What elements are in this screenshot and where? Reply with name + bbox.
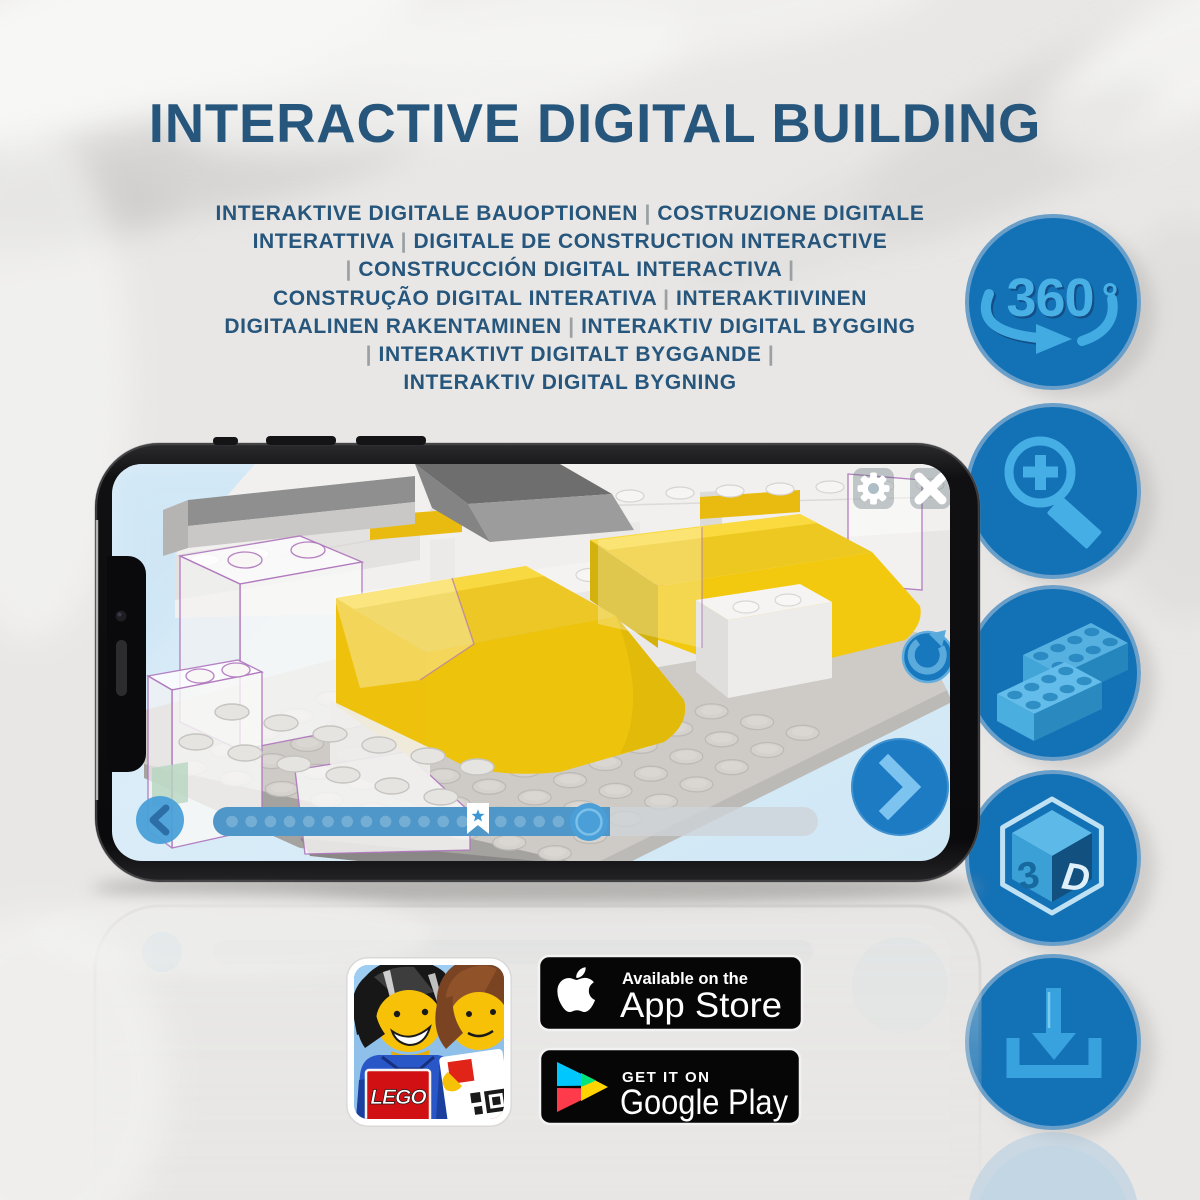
svg-text:Google Play: Google Play: [620, 1083, 788, 1122]
svg-text:DIGITAALINEN RAKENTAMINEN | IN: DIGITAALINEN RAKENTAMINEN | INTERAKTIV D…: [224, 315, 915, 338]
svg-text:LEGO: LEGO: [370, 1086, 426, 1109]
svg-text:CONSTRUÇÃO DIGITAL INTERATIVA: CONSTRUÇÃO DIGITAL INTERATIVA | INTERAKT…: [273, 287, 867, 310]
svg-text:INTERACTIVE DIGITAL BUILDING: INTERACTIVE DIGITAL BUILDING: [149, 93, 1041, 154]
svg-text:| INTERAKTIVT DIGITALT BYGGAND: | INTERAKTIVT DIGITALT BYGGANDE |: [366, 343, 775, 366]
svg-text:| CONSTRUCCIÓN DIGITAL INTERAC: | CONSTRUCCIÓN DIGITAL INTERACTIVA |: [345, 257, 794, 281]
svg-text:INTERAKTIV DIGITAL BYGNING: INTERAKTIV DIGITAL BYGNING: [403, 371, 736, 394]
svg-text:INTERAKTIVE DIGITALE BAUOPTION: INTERAKTIVE DIGITALE BAUOPTIONEN | COSTR…: [216, 202, 925, 225]
svg-text:App Store: App Store: [620, 986, 782, 1025]
svg-text:INTERATTIVA | DIGITALE DE CONS: INTERATTIVA | DIGITALE DE CONSTRUCTION I…: [253, 230, 888, 253]
svg-text:D: D: [1059, 855, 1092, 900]
svg-text:360: 360: [1006, 268, 1093, 328]
